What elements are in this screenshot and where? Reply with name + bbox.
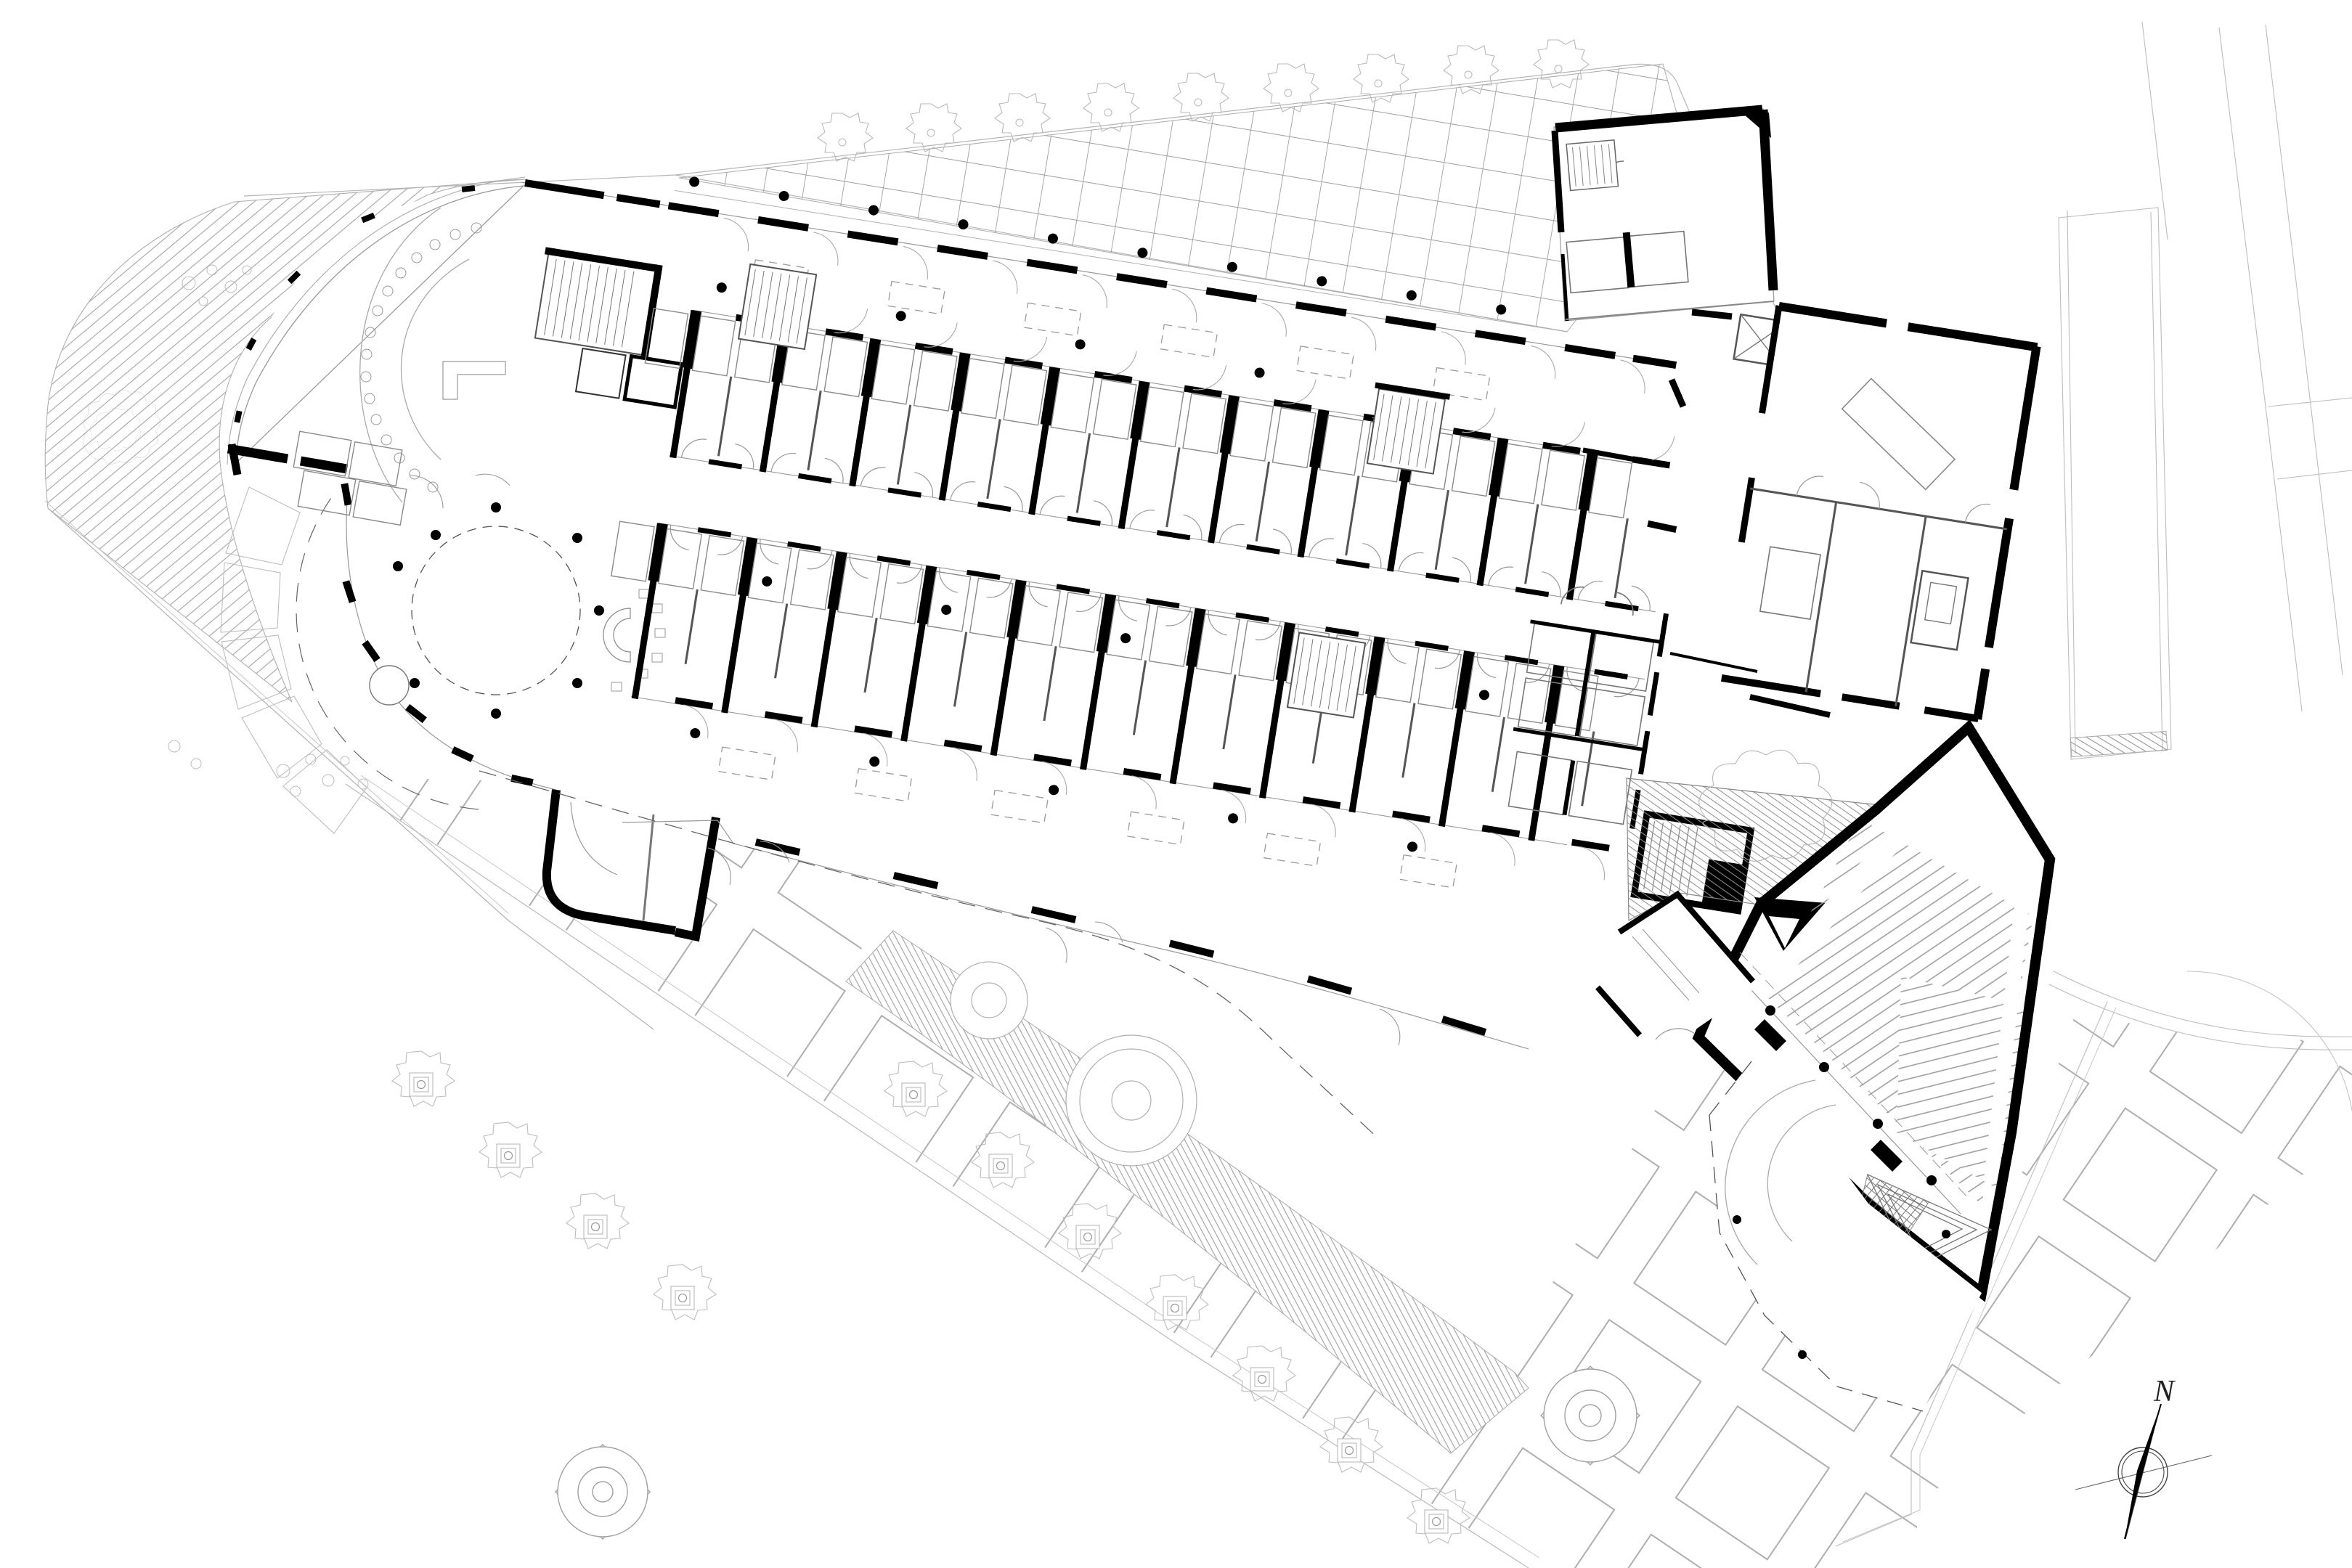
svg-text:N: N bbox=[2153, 1375, 2176, 1408]
